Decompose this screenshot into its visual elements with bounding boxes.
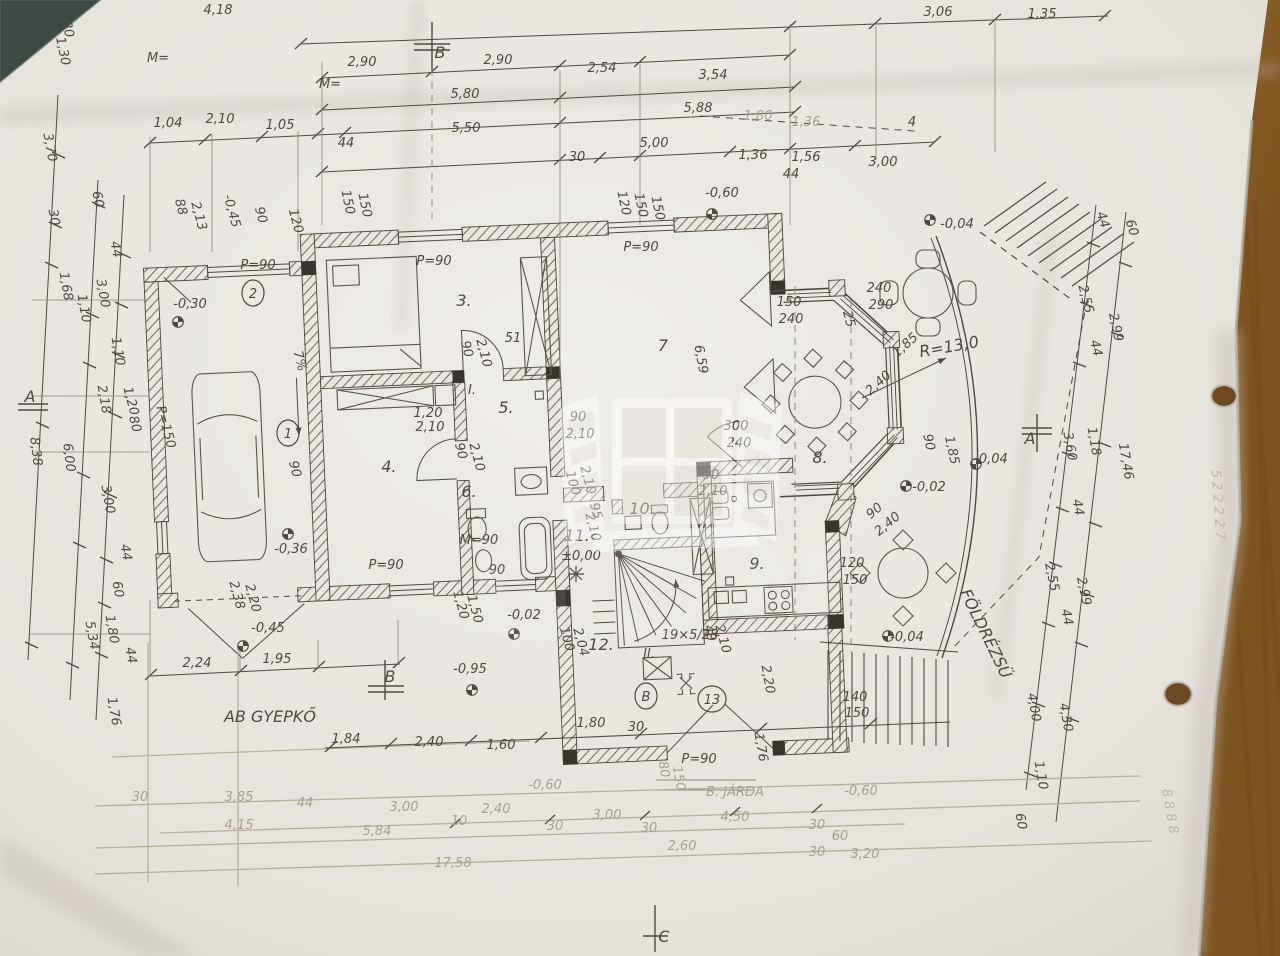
dim-label: 44 (122, 646, 140, 665)
dim-label: 2,90 (484, 53, 513, 68)
dim-label: 3,85 (225, 790, 254, 805)
dim-label: 3,00 (593, 808, 622, 823)
dim-label: -0,60 (528, 778, 562, 793)
dim-label: 1,36 (792, 115, 821, 130)
dim-label: P=90 (623, 240, 658, 255)
dim-label: -0,04 (890, 630, 924, 645)
dim-label: -0,04 (940, 217, 974, 232)
dim-label: 3,06 (924, 5, 953, 20)
dim-label: -0,30 (173, 297, 207, 312)
dim-label: 2,10 (206, 112, 235, 127)
dim-label: 4,50 (721, 810, 750, 825)
dim-label: M= (319, 77, 341, 92)
dim-label: 1,04 (154, 116, 183, 131)
dim-label: 3,54 (699, 68, 728, 83)
dim-label: 5,50 (452, 121, 481, 136)
dim-label: B (435, 43, 446, 62)
dim-label: 30 (132, 790, 149, 805)
dim-label: 1,20 (414, 406, 443, 421)
dim-label: 3. (456, 291, 471, 310)
dim-label: 7 (658, 336, 669, 355)
dim-label: 30 (45, 208, 63, 227)
dim-label: B (385, 667, 396, 686)
dim-label: 5,84 (363, 824, 392, 839)
dim-label: 30 (641, 821, 658, 836)
dim-label: 44 (783, 167, 800, 182)
dim-label: 44 (1069, 498, 1087, 517)
dim-label: P=90 (416, 254, 451, 269)
dim-label: 4. (381, 457, 396, 476)
watermark-text: GDN (470, 522, 866, 671)
dim-label: 5,88 (684, 101, 713, 116)
dim-label: 140 (843, 690, 868, 705)
dim-label: 2,90 (348, 55, 377, 70)
dim-label: P=90 (368, 558, 403, 573)
dim-label: C (658, 927, 670, 946)
photographed-floor-plan: Photographed hand-drawn ground floor pla… (0, 0, 1280, 956)
dim-label: 150 (777, 295, 802, 310)
dim-label: 1,80 (577, 716, 606, 731)
dim-label: 1,84 (332, 732, 361, 747)
dim-label: 1,80 (744, 109, 773, 124)
dim-label: -0,60 (844, 784, 878, 799)
dim-label: 2,40 (415, 735, 444, 750)
dim-label: 44 (107, 240, 125, 259)
dim-label: -0,45 (251, 621, 285, 636)
dim-label: 4 (908, 115, 916, 130)
dim-label: 1,95 (263, 652, 292, 667)
dim-label: P=90 (681, 752, 716, 767)
dim-label: 4,18 (204, 3, 233, 18)
dim-label: 1,60 (487, 738, 516, 753)
dim-label: AB GYEPKŐ (223, 706, 316, 726)
circled-number: 13 (704, 693, 721, 708)
dim-label: 30 (809, 845, 826, 860)
dim-label: 1,05 (266, 118, 295, 133)
circled-number: B (642, 690, 651, 705)
circled-number: 2 (249, 287, 257, 302)
dim-label: 5,80 (451, 87, 480, 102)
dim-label: -0,04 (974, 452, 1008, 467)
dim-label: B. JÁRDA (706, 784, 764, 800)
dim-label: 30 (628, 720, 645, 735)
dim-label: 44 (117, 543, 135, 562)
dim-label: 1,35 (1028, 7, 1057, 22)
dim-label: 3,00 (390, 800, 419, 815)
dim-label: A (1024, 429, 1036, 448)
dim-label: 2,40 (482, 802, 511, 817)
floor-plan-photo: Photographed hand-drawn ground floor pla… (0, 0, 1280, 956)
dim-label: 30 (547, 819, 564, 834)
dim-label: 2,10 (416, 420, 445, 435)
dim-label: 8. (812, 448, 827, 467)
dim-label: 2,24 (183, 656, 212, 671)
dim-label: 6. (461, 482, 476, 501)
dim-label: I. (468, 383, 476, 398)
dim-label: 30 (809, 818, 826, 833)
dim-label: 44 (338, 136, 355, 151)
dim-label: 2,54 (588, 61, 617, 76)
dim-label: 150 (845, 706, 870, 721)
dim-label: -0,60 (705, 186, 739, 201)
dim-label: 1,36 (739, 148, 768, 163)
dim-label: 5. (498, 398, 513, 417)
dim-label: 60 (89, 190, 107, 209)
dim-label: 60 (832, 829, 849, 844)
circled-number: 1 (284, 427, 292, 442)
dim-label: 44 (297, 796, 314, 811)
dim-label: P=90 (240, 258, 275, 273)
dim-label: 3,00 (869, 155, 898, 170)
dim-label: 2,60 (668, 839, 697, 854)
dim-label: 17,58 (434, 856, 471, 871)
dim-label: 290 (869, 298, 894, 313)
dim-label: 10 (451, 814, 468, 829)
dim-label: 5,00 (640, 136, 669, 151)
dim-label: 60 (109, 580, 127, 599)
dim-label: 3,20 (851, 847, 880, 862)
dim-label: -0,02 (912, 480, 946, 495)
dim-label: 240 (779, 312, 804, 327)
dim-label: 51 (505, 331, 522, 346)
dim-label: 60 (1012, 812, 1030, 831)
dim-label: M= (147, 51, 169, 66)
dim-label: 4,15 (225, 818, 254, 833)
dim-label: -0,36 (274, 542, 308, 557)
dim-label: 240 (867, 281, 892, 296)
dim-label: A (24, 387, 36, 406)
dim-label: 1,56 (792, 150, 821, 165)
dim-label: 30 (569, 150, 586, 165)
